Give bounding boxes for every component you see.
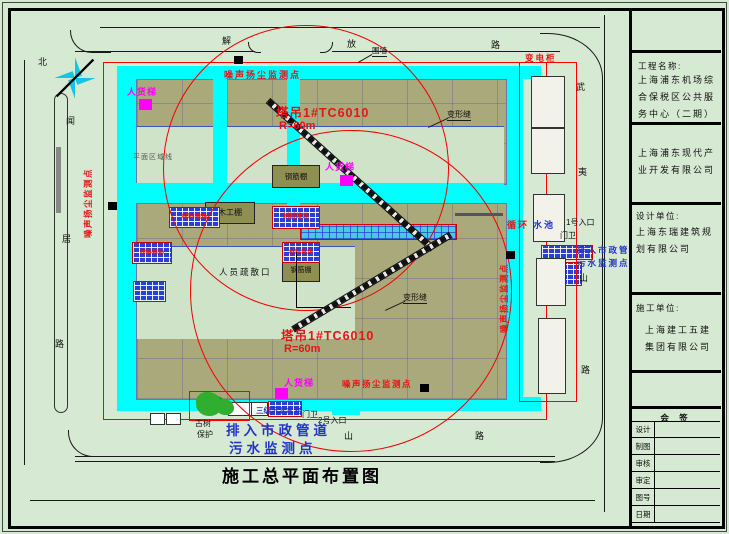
road-name-right-char: 路 (581, 366, 590, 375)
ring-road-left (117, 66, 136, 411)
sign-row: 日期 (632, 506, 720, 523)
sewage-small-line2: 污水监测点 (577, 259, 630, 268)
road-line (100, 27, 600, 28)
road-name-right-char: 夷 (578, 168, 587, 177)
sign-row-label: 审定 (632, 472, 655, 488)
monitor-point-dot (506, 251, 515, 259)
construction-unit-name: 上海建工五建集团有限公司 (640, 322, 716, 356)
region-line-label: 平面区域线 (133, 154, 173, 161)
sign-row: 审定 (632, 472, 720, 489)
deformation-joint-label: 变形缝 (447, 111, 471, 121)
compass-rose-icon (52, 55, 98, 101)
road-name-bottom-char: 山 (344, 432, 353, 441)
road-name-left-char: 居 (62, 235, 71, 244)
sign-row: 制图 (632, 438, 720, 455)
entrance1-label: 1号入口 (566, 219, 594, 227)
crane1-name: 塔吊1#TC6010 (276, 107, 369, 120)
compass-north-label: 北 (38, 58, 47, 67)
road-name-left-char: 闻 (66, 117, 75, 126)
noise-monitor-label-right: 噪声扬尘监测点 (500, 263, 509, 333)
drawing-title: 施工总平面布置图 (222, 468, 382, 485)
road-line (24, 60, 25, 465)
sign-row-label: 日期 (632, 506, 655, 522)
noise-monitor-label-bottom: 噪声扬尘监测点 (342, 380, 412, 389)
hoist-symbol (275, 388, 288, 399)
design-unit-label: 设计单位: (636, 208, 680, 224)
road-left-oval (54, 93, 68, 413)
old-tree-label: 古树 (195, 420, 211, 428)
road-median (56, 147, 61, 213)
road-line (30, 500, 595, 501)
road-line (75, 461, 555, 462)
monitor-point-dot (420, 384, 429, 392)
titleblock-separator (630, 50, 721, 53)
old-tree-protect-label: 保护 (197, 431, 213, 439)
crane1-radius: R=60m (279, 121, 315, 132)
crane2-name: 塔吊1#TC6010 (281, 330, 374, 343)
road-name-top-char: 路 (491, 41, 500, 50)
stockyard-label: 材料堆场 (140, 250, 164, 256)
sewage-small-line1: 排入市政管 (577, 246, 630, 255)
circulating-pool-label-2: 水池 (533, 221, 555, 230)
sign-row: 设计 (632, 421, 720, 438)
noise-monitor-label-top: 噪声扬尘监测点 (224, 71, 301, 80)
sign-row: 审核 (632, 455, 720, 472)
road-name-top-char: 解 (222, 37, 231, 46)
power-cabinet-label: 变电柜 (525, 54, 557, 63)
equipment-box (531, 76, 565, 128)
sign-row: 图号 (632, 489, 720, 506)
evacuation-label: 人员疏散口 (219, 268, 272, 277)
titleblock-separator (630, 292, 721, 295)
titleblock-separator (630, 202, 721, 205)
monitor-point-dot (234, 56, 243, 64)
utility-line (455, 213, 503, 216)
sewage-label-line2: 污水监测点 (229, 442, 317, 456)
road-name-left-char: 路 (55, 340, 64, 349)
stockyard: 材料堆场 (132, 242, 172, 264)
road-name-right-char: 武 (576, 83, 585, 92)
guard-label: 门卫 (560, 232, 576, 240)
stockyard (133, 281, 166, 302)
crane2-radius: R=60m (284, 344, 320, 355)
project-name: 上海浦东机场综合保税区公共服务中心（二期） (638, 72, 718, 123)
design-unit-name: 上海东瑞建筑规划有限公司 (636, 224, 718, 258)
construction-unit-label: 施工单位: (636, 300, 680, 316)
road-name-top-char: 放 (347, 40, 356, 49)
equipment-box (536, 258, 566, 306)
sign-row-label: 设计 (632, 421, 655, 437)
noise-monitor-label-left: 噪声扬尘监测点 (84, 168, 93, 238)
sign-table-header: 会 签 (632, 408, 720, 422)
hoist-symbol (139, 99, 152, 110)
sign-row-label: 制图 (632, 438, 655, 454)
old-tree-canopy (196, 392, 222, 416)
road-name-right-char: 山 (579, 274, 588, 283)
hoist-symbol (340, 175, 353, 186)
equipment-box (538, 318, 566, 394)
fence-label: 围墙 (372, 47, 387, 57)
road-line (75, 456, 555, 457)
equipment-box (531, 128, 565, 174)
guard-label: 门卫 (302, 411, 318, 419)
temp-facility-box (166, 413, 181, 425)
entrance2-label: 2号入口 (318, 417, 346, 425)
hoist-label: 人货梯 (325, 163, 355, 172)
sewage-label-line1: 排入市政管道 (226, 424, 331, 438)
circulating-pool-label-1: 循环 (507, 221, 529, 230)
temp-facility-box (150, 413, 165, 425)
titleblock-separator (630, 370, 721, 373)
owner-name: 上海浦东现代产业开发有限公司 (638, 145, 718, 179)
site-plan-drawing: 钢筋棚 木工棚 钢筋棚 材料堆场 材料堆场 材料堆场 材料堆场 (0, 0, 729, 534)
monitor-point-dot (108, 202, 117, 210)
compass (52, 55, 98, 101)
hoist-label: 人货梯 (127, 88, 157, 97)
hoist-label: 人货梯 (284, 379, 314, 388)
sediment-pool-label: 三级沉淀水池 (256, 407, 301, 415)
deformation-joint-label: 变形缝 (403, 294, 427, 304)
sign-row-label: 图号 (632, 489, 655, 505)
road-name-bottom-char: 路 (475, 432, 484, 441)
sign-row-label: 审核 (632, 455, 655, 471)
